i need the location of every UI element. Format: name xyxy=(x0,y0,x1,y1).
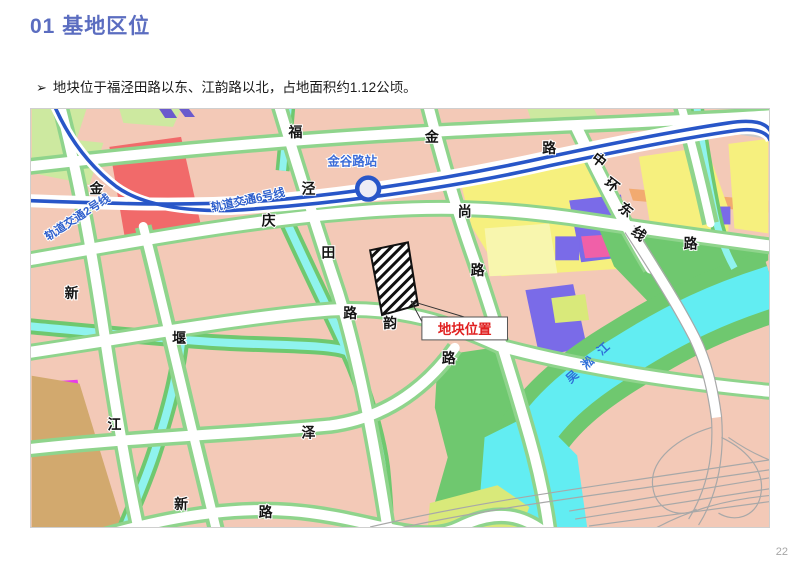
station-label: 金谷路站 xyxy=(326,154,377,169)
metro-station-marker xyxy=(357,178,379,200)
map-canvas: 地块位置 福金路金泾田路庆尚路路韵路新堰江泽新路中环东线 轨道交通2号线轨道交通… xyxy=(31,109,769,527)
road-label: 泾 xyxy=(301,181,315,197)
site-label: 地块位置 xyxy=(438,321,492,337)
road-label: 路 xyxy=(471,262,486,278)
road-label: 庆 xyxy=(261,212,276,228)
road-label: 路 xyxy=(542,140,557,156)
road-label: 泽 xyxy=(301,424,315,440)
slide: 01 基地区位 ➢地块位于福泾田路以东、江韵路以北，占地面积约1.12公顷。 xyxy=(0,0,800,566)
road-label: 新 xyxy=(174,496,188,512)
road-label: 路 xyxy=(259,504,274,520)
road-label: 韵 xyxy=(383,315,397,331)
road-label: 堰 xyxy=(172,330,186,346)
road-label: 金 xyxy=(424,129,440,145)
page-title: 01 基地区位 xyxy=(30,10,150,40)
road-label: 江 xyxy=(107,416,121,432)
bullet-line: ➢地块位于福泾田路以东、江韵路以北，占地面积约1.12公顷。 xyxy=(36,76,417,96)
road-label: 路 xyxy=(684,235,699,251)
page-number: 22 xyxy=(776,546,788,558)
bullet-text: 地块位于福泾田路以东、江韵路以北，占地面积约1.12公顷。 xyxy=(53,80,417,95)
road-label: 路 xyxy=(343,305,358,321)
road-label: 尚 xyxy=(458,203,472,219)
site-location-map: 地块位置 福金路金泾田路庆尚路路韵路新堰江泽新路中环东线 轨道交通2号线轨道交通… xyxy=(30,108,770,528)
road-label: 福 xyxy=(288,124,303,140)
bullet-arrow-icon: ➢ xyxy=(36,80,47,95)
road-label: 新 xyxy=(65,285,79,301)
road-label: 路 xyxy=(442,350,457,366)
road-label: 田 xyxy=(321,244,335,260)
